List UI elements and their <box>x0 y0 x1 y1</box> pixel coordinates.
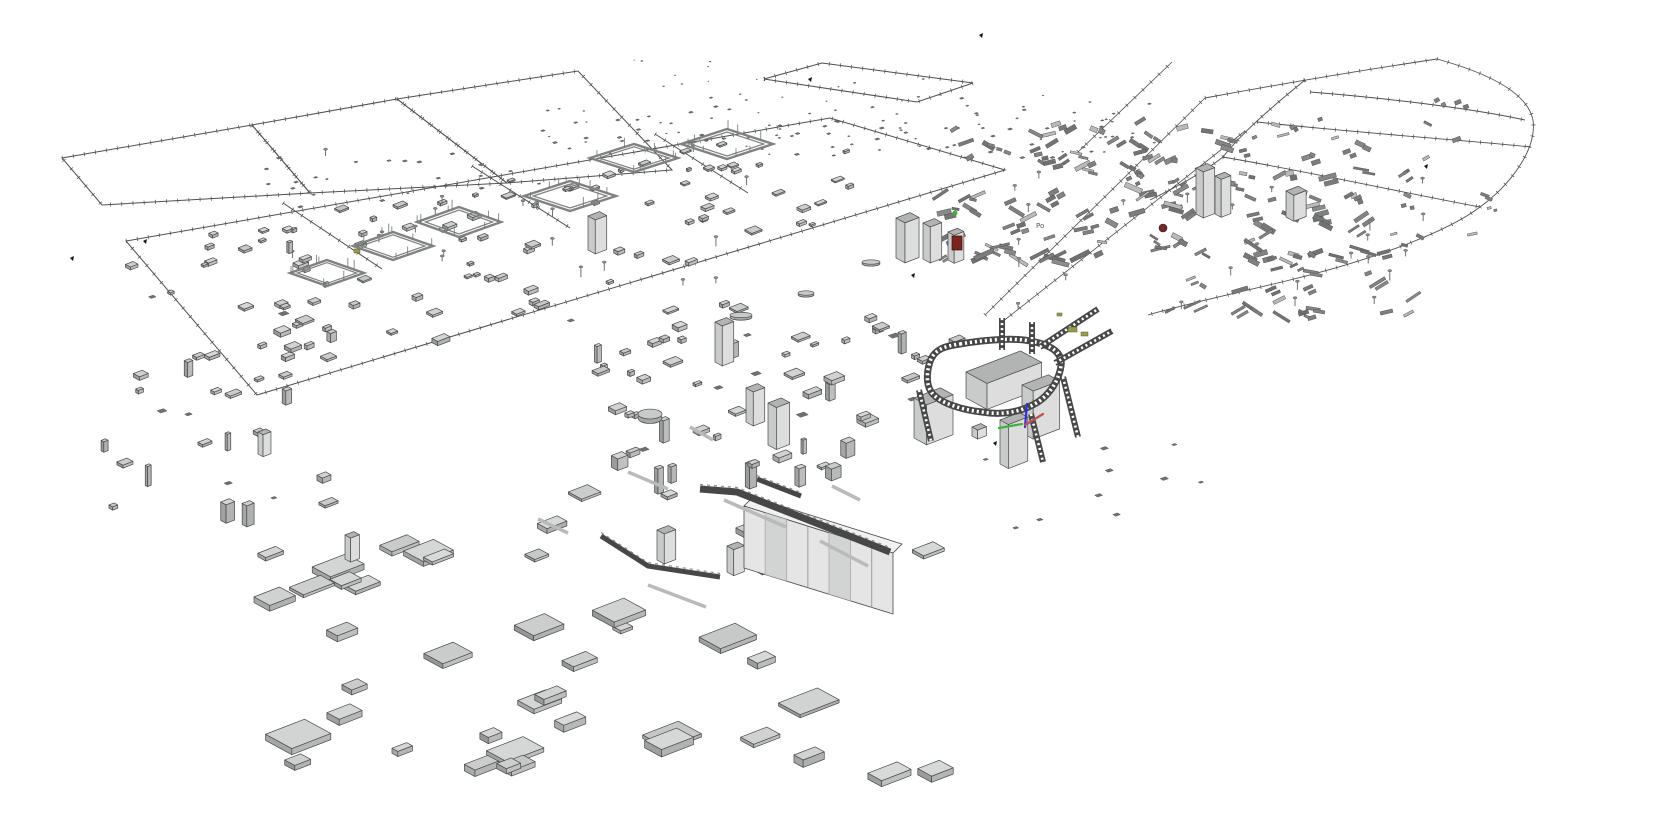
flag-marker[interactable] <box>808 77 812 82</box>
flag-marker[interactable] <box>70 256 74 261</box>
building-small-cube[interactable] <box>972 424 986 439</box>
olive-part[interactable] <box>1081 332 1088 336</box>
tank-dome[interactable] <box>638 409 662 423</box>
plane-upper-band-mid[interactable] <box>252 99 507 193</box>
cabinet-row[interactable] <box>744 497 902 614</box>
cad-viewport[interactable]: Po <box>0 0 1660 840</box>
plane-upper-band-left[interactable] <box>62 125 310 205</box>
cluster-curve-specks[interactable] <box>1317 97 1497 236</box>
red-equipment-box[interactable] <box>952 236 962 250</box>
labels: Po <box>1036 222 1044 230</box>
flag-marker[interactable] <box>911 273 915 278</box>
short-ramp[interactable] <box>757 476 801 497</box>
cluster-center-mid[interactable] <box>567 300 965 494</box>
cluster-curve-lower[interactable] <box>1268 232 1425 272</box>
pit-frame[interactable] <box>681 120 773 159</box>
olive-part[interactable] <box>1068 327 1077 332</box>
pit-frame[interactable] <box>417 200 501 237</box>
green-marker[interactable] <box>953 211 958 216</box>
plane-upper-slab[interactable] <box>764 63 973 102</box>
cluster-pit-posts[interactable] <box>290 144 748 285</box>
flag-marker[interactable] <box>979 33 983 38</box>
micro-label: Po <box>1036 222 1044 230</box>
cluster-midplane[interactable] <box>201 141 854 361</box>
red-sphere-marker[interactable] <box>1159 224 1167 232</box>
pit-frame[interactable] <box>353 224 433 260</box>
cluster-left-edge[interactable] <box>101 240 338 527</box>
flag-marker[interactable] <box>1424 164 1428 169</box>
flag-markers[interactable] <box>70 33 1428 446</box>
cluster-upper-mid[interactable] <box>264 153 541 208</box>
olive-part[interactable] <box>1057 313 1062 316</box>
light-strip[interactable] <box>832 486 860 500</box>
olive-part[interactable] <box>354 249 360 253</box>
ground-planes[interactable] <box>62 63 1005 395</box>
light-strip[interactable] <box>648 585 706 607</box>
plane-plot-div-1[interactable] <box>283 203 382 269</box>
plane-plot-div-2[interactable] <box>472 166 570 228</box>
flag-marker[interactable] <box>143 239 147 244</box>
plane-upper-band-right[interactable] <box>397 71 672 183</box>
flag-marker[interactable] <box>993 441 997 446</box>
tank-dome[interactable] <box>798 291 814 297</box>
cluster-top-specks[interactable] <box>633 60 924 87</box>
viewport-canvas[interactable]: Po <box>0 0 1660 840</box>
cluster-far-band-b[interactable] <box>704 94 1155 159</box>
building-south-wall[interactable] <box>1000 413 1028 469</box>
tank-dome[interactable] <box>862 260 880 266</box>
pit-frame[interactable] <box>590 138 678 172</box>
plane-main-plot[interactable] <box>126 118 1005 395</box>
cluster-right-dense[interactable] <box>932 117 1376 267</box>
tank-dome[interactable] <box>730 312 752 320</box>
